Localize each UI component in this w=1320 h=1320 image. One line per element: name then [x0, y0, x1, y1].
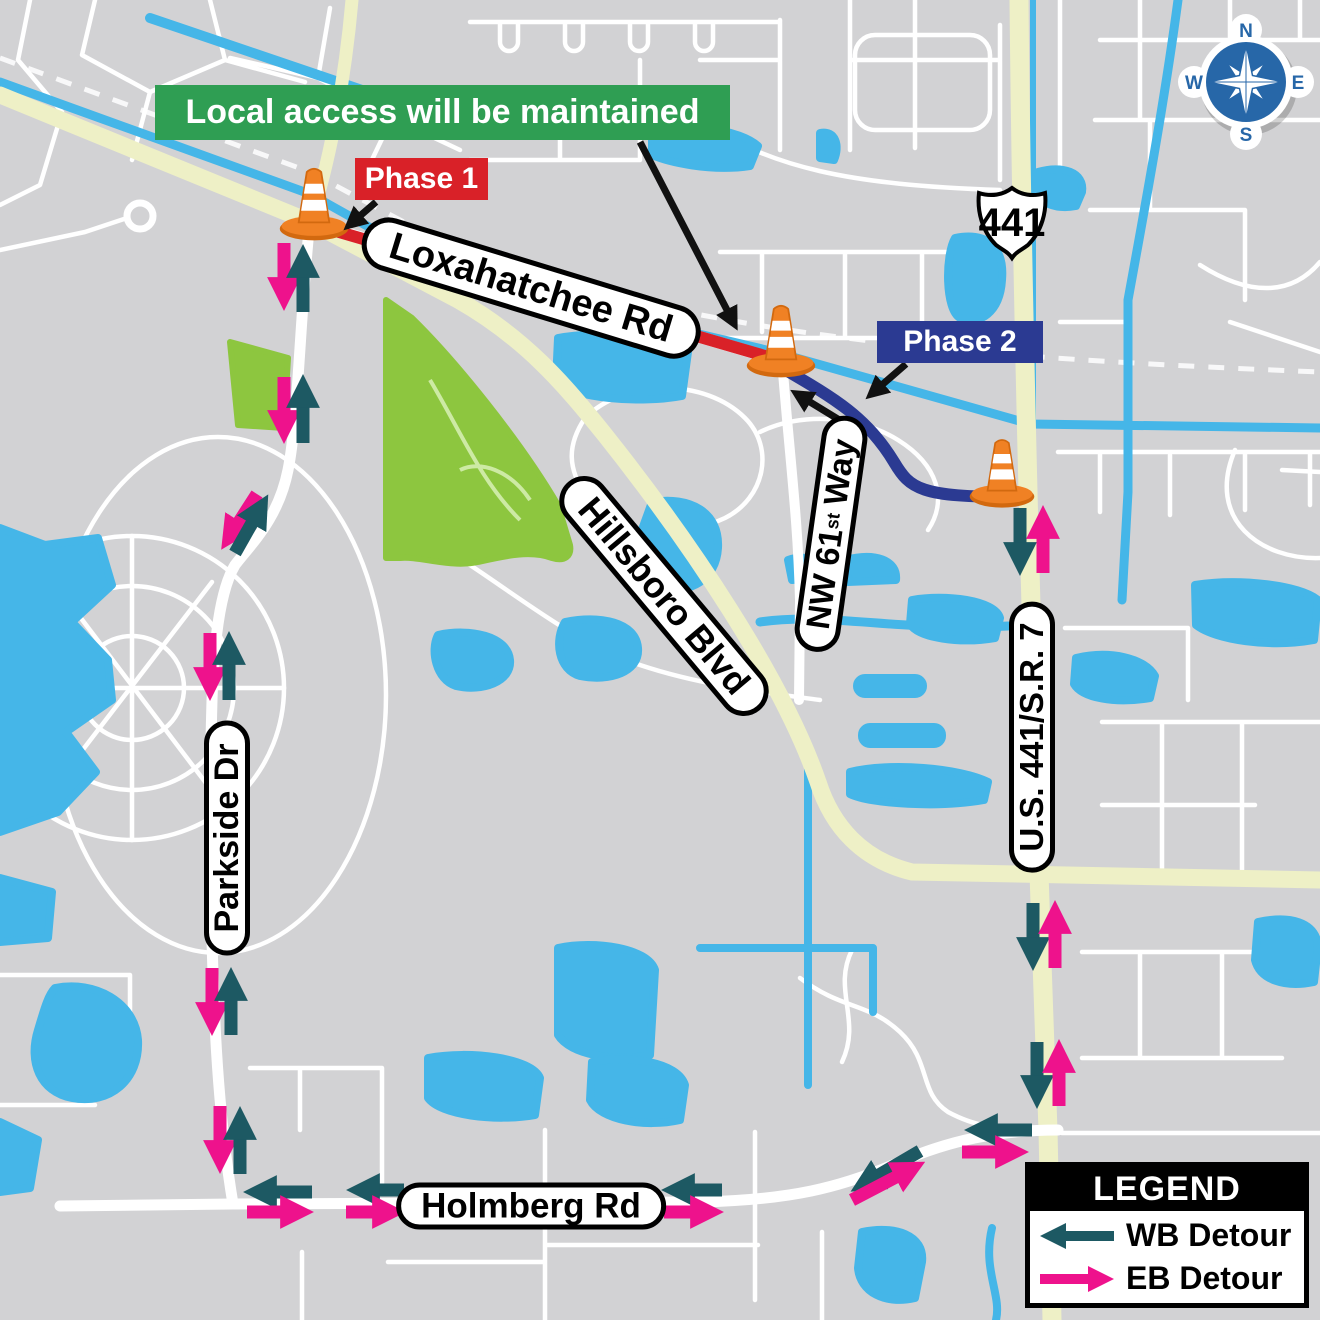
compass-south-label: S — [1240, 125, 1253, 146]
compass-north-label: N — [1239, 21, 1253, 42]
detour-map: 441 N E S W Local access will be maintai… — [0, 0, 1320, 1320]
shield-route-number: 441 — [979, 201, 1046, 245]
compass-east-label: E — [1292, 73, 1305, 94]
compass-west-label: W — [1185, 73, 1203, 94]
map-canvas: 441 N E S W — [0, 0, 1320, 1320]
